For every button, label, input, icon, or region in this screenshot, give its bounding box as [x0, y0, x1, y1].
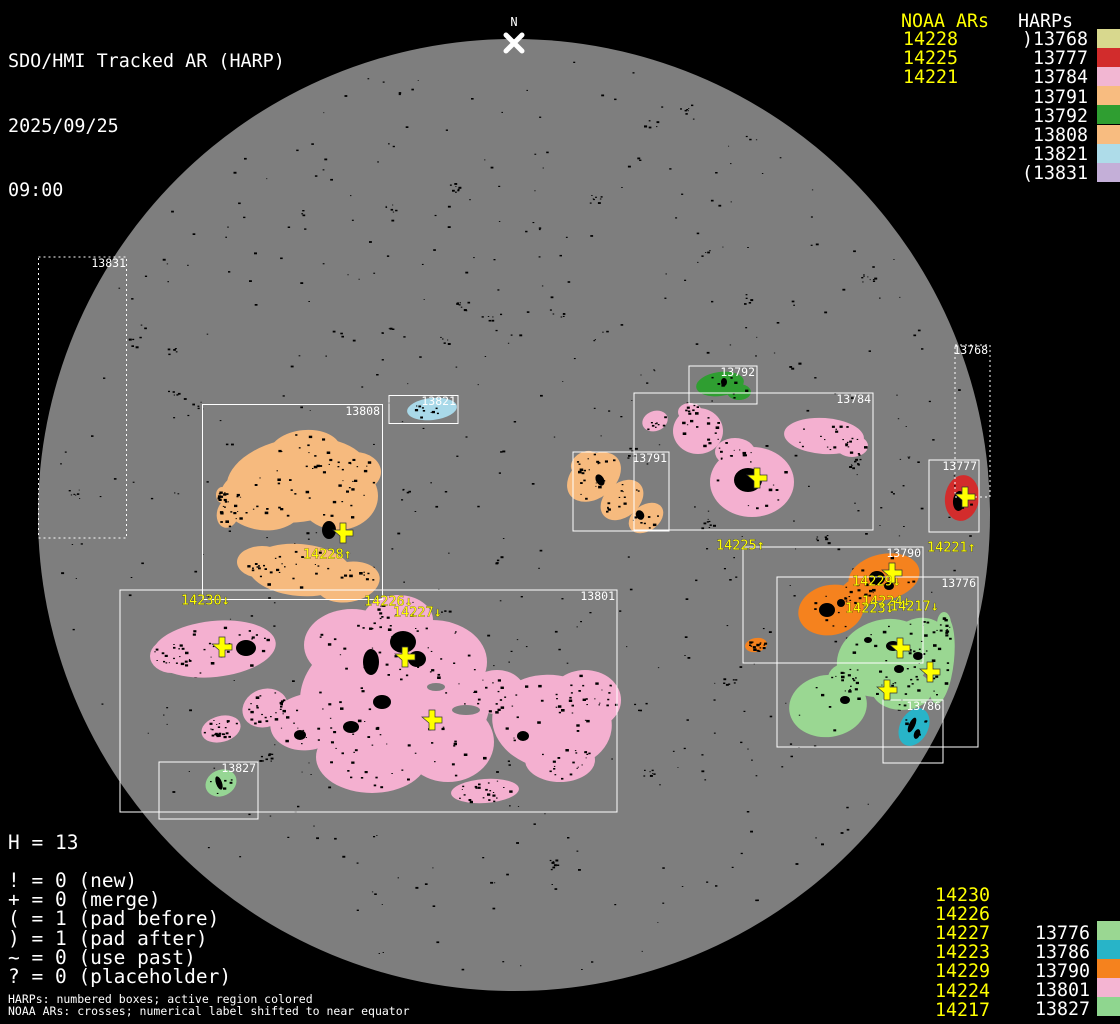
harp-number: 13790 [1035, 962, 1090, 981]
page-title: SDO/HMI Tracked AR (HARP) [8, 51, 285, 73]
harp-number: 13776 [1035, 924, 1090, 943]
harp-swatch-13791 [1097, 86, 1120, 105]
harp-box-label-13821: 13821 [421, 394, 456, 408]
noaa-ar-number: 14225 [903, 49, 958, 68]
harp-box-label-13831: 13831 [91, 256, 126, 270]
noaa-ar-list-bottom: 14230142261422714223142291422414217 [935, 886, 990, 1020]
harp-number: (13831 [1022, 164, 1088, 183]
noaa-ar-label: 14221↑ [927, 540, 976, 556]
observation-time: 09:00 [8, 180, 285, 202]
harp-swatch-13792 [1097, 105, 1120, 124]
harp-box-label-13791: 13791 [632, 451, 667, 465]
footnotes: HARPs: numbered boxes; active region col… [8, 993, 410, 1017]
flag-legend-line: ( = 1 (pad before) [8, 909, 231, 928]
north-label: N [510, 15, 517, 29]
harp-number: 13777 [1022, 49, 1088, 68]
noaa-ar-number: 14230 [935, 886, 990, 905]
harp-box-label-13808: 13808 [345, 404, 380, 418]
harp-swatch-13768 [1097, 29, 1120, 48]
noaa-ar-label: 14229↓ [852, 574, 901, 590]
harp-number: 13786 [1035, 943, 1090, 962]
harp-box-label-13776: 13776 [941, 576, 976, 590]
harp-tracker-screen: 1383113768138081382113801138271379213784… [0, 0, 1120, 1024]
noaa-ar-number: 14226 [935, 905, 990, 924]
harp-swatch-13831 [1097, 163, 1120, 182]
harp-list-bottom: 1377613786137901380113827 [1035, 924, 1090, 1020]
noaa-ar-number: 14217 [935, 1001, 990, 1020]
noaa-ar-label: 14225↑ [716, 538, 765, 554]
harp-number: )13768 [1022, 30, 1088, 49]
harp-swatch-13784 [1097, 67, 1120, 86]
harp-swatch-13808 [1097, 125, 1120, 144]
harp-count: H = 13 [8, 831, 78, 854]
harp-box-label-13792: 13792 [720, 365, 755, 379]
harp-swatch-13801 [1097, 978, 1120, 997]
harp-list-top: )13768137771378413791137921380813821(138… [1022, 30, 1088, 184]
flag-legend-line: ) = 1 (pad after) [8, 929, 231, 948]
harp-number: 13801 [1035, 981, 1090, 1000]
harp-number: 13808 [1022, 126, 1088, 145]
harp-swatch-13786 [1097, 940, 1120, 959]
harp-swatch-13821 [1097, 144, 1120, 163]
noaa-ar-label: 14223↓ [845, 601, 894, 617]
harp-number: 13792 [1022, 107, 1088, 126]
noaa-ar-label: 14227↓ [393, 605, 442, 621]
noaa-ar-label: 14217↓ [890, 599, 939, 615]
harp-number: 13791 [1022, 88, 1088, 107]
noaa-ar-number: 14227 [935, 924, 990, 943]
harp-box-label-13777: 13777 [942, 459, 977, 473]
harp-swatch-13777 [1097, 48, 1120, 67]
noaa-ar-number: 14229 [935, 962, 990, 981]
harp-box-label-13827: 13827 [221, 761, 256, 775]
harp-box-label-13801: 13801 [580, 589, 615, 603]
harp-number: 13827 [1035, 1000, 1090, 1019]
flag-legend-line: ? = 0 (placeholder) [8, 967, 231, 986]
flag-legend: ! = 0 (new)+ = 0 (merge)( = 1 (pad befor… [8, 871, 231, 986]
harp-box-label-13786: 13786 [906, 699, 941, 713]
harp-box-label-13768: 13768 [953, 343, 988, 357]
harp-swatch-13790 [1097, 959, 1120, 978]
noaa-ar-number: 14221 [903, 68, 958, 87]
observation-date: 2025/09/25 [8, 116, 285, 138]
noaa-ar-label: 14228↑ [303, 547, 352, 563]
noaa-ar-number: 14224 [935, 982, 990, 1001]
harp-swatch-13827 [1097, 997, 1120, 1016]
noaa-ar-list-top: 142281422514221 [903, 30, 958, 88]
harp-number: 13784 [1022, 68, 1088, 87]
noaa-ar-number: 14228 [903, 30, 958, 49]
noaa-ar-label: 14230↓ [181, 593, 230, 609]
harp-box-label-13784: 13784 [836, 392, 871, 406]
footnote-line: NOAA ARs: crosses; numerical label shift… [8, 1005, 410, 1017]
harp-box-label-13790: 13790 [886, 546, 921, 560]
title-block: SDO/HMI Tracked AR (HARP) 2025/09/25 09:… [8, 8, 285, 245]
harp-swatch-13776 [1097, 921, 1120, 940]
harp-number: 13821 [1022, 145, 1088, 164]
noaa-ar-number: 14223 [935, 943, 990, 962]
